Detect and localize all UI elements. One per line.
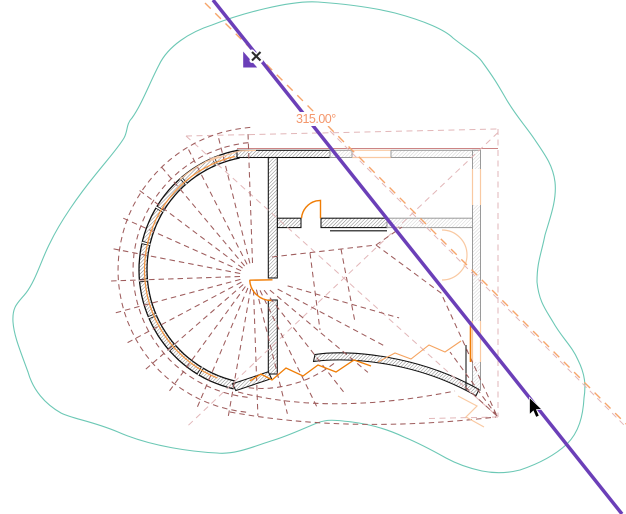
svg-text:315.00°: 315.00° <box>296 112 336 126</box>
